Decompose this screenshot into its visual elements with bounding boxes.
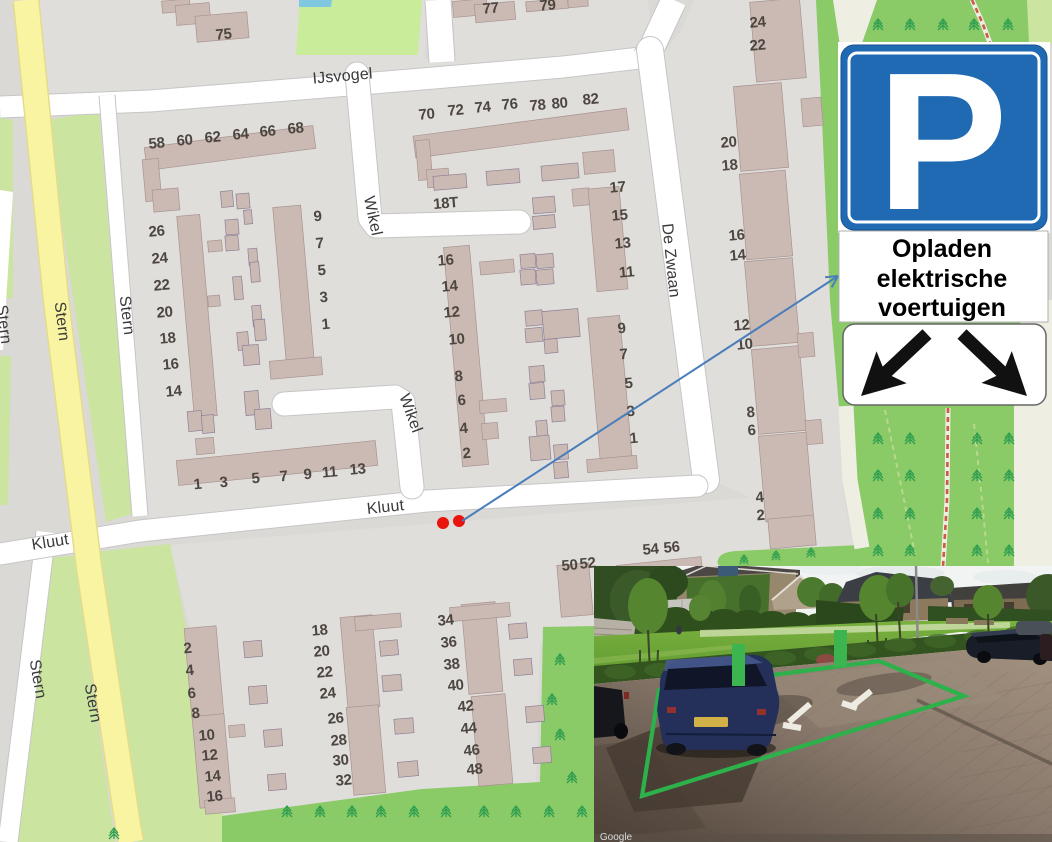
svg-text:17: 17 — [609, 178, 627, 196]
svg-text:2: 2 — [183, 640, 192, 658]
svg-text:11: 11 — [618, 263, 635, 281]
svg-text:5: 5 — [624, 375, 633, 393]
svg-text:38: 38 — [443, 655, 461, 673]
svg-text:14: 14 — [204, 767, 222, 785]
svg-text:50: 50 — [561, 556, 579, 574]
svg-text:8: 8 — [746, 404, 755, 422]
svg-text:58: 58 — [148, 134, 166, 152]
svg-text:6: 6 — [187, 685, 196, 703]
svg-text:14: 14 — [441, 277, 459, 295]
svg-text:82: 82 — [582, 90, 600, 108]
svg-text:72: 72 — [447, 101, 465, 119]
svg-text:elektrische: elektrische — [877, 265, 1008, 293]
svg-text:voertuigen: voertuigen — [878, 294, 1006, 322]
svg-text:16: 16 — [162, 355, 180, 373]
svg-text:76: 76 — [501, 95, 519, 113]
svg-text:8: 8 — [191, 705, 200, 723]
svg-text:13: 13 — [614, 234, 632, 252]
svg-text:7: 7 — [619, 346, 628, 364]
svg-text:28: 28 — [330, 731, 348, 749]
svg-text:34: 34 — [437, 611, 455, 629]
svg-text:20: 20 — [720, 133, 738, 151]
svg-text:10: 10 — [736, 335, 754, 353]
svg-text:68: 68 — [287, 119, 305, 137]
svg-text:18: 18 — [311, 621, 329, 639]
svg-text:60: 60 — [176, 131, 194, 149]
svg-text:2: 2 — [462, 445, 471, 463]
svg-text:7: 7 — [315, 235, 324, 253]
svg-text:16: 16 — [728, 226, 746, 244]
svg-text:77: 77 — [482, 0, 500, 18]
svg-text:14: 14 — [729, 246, 747, 264]
svg-text:16: 16 — [206, 787, 224, 805]
svg-text:78: 78 — [529, 96, 547, 114]
svg-text:22: 22 — [749, 36, 767, 54]
svg-text:24: 24 — [749, 13, 767, 31]
svg-text:46: 46 — [463, 741, 481, 759]
svg-text:6: 6 — [747, 422, 756, 440]
svg-text:18: 18 — [159, 329, 177, 347]
svg-text:70: 70 — [418, 105, 436, 123]
svg-text:66: 66 — [259, 122, 277, 140]
svg-text:Opladen: Opladen — [892, 235, 992, 263]
svg-text:5: 5 — [251, 470, 260, 488]
svg-text:22: 22 — [153, 276, 171, 294]
svg-text:1: 1 — [321, 316, 330, 334]
svg-text:64: 64 — [232, 125, 250, 143]
svg-text:5: 5 — [317, 262, 326, 280]
svg-text:12: 12 — [733, 316, 751, 334]
svg-text:56: 56 — [663, 538, 681, 556]
svg-text:Google: Google — [600, 832, 633, 842]
svg-text:54: 54 — [642, 540, 660, 558]
svg-text:42: 42 — [457, 697, 475, 715]
svg-text:11: 11 — [321, 463, 338, 481]
svg-text:24: 24 — [319, 684, 337, 702]
svg-text:62: 62 — [204, 128, 222, 146]
svg-text:10: 10 — [448, 330, 466, 348]
svg-text:1: 1 — [629, 430, 638, 448]
svg-text:18T: 18T — [432, 194, 458, 213]
svg-text:26: 26 — [327, 709, 345, 727]
svg-text:9: 9 — [303, 466, 312, 484]
svg-text:8: 8 — [454, 368, 463, 386]
svg-text:2: 2 — [756, 507, 765, 525]
svg-text:13: 13 — [349, 460, 367, 478]
svg-text:52: 52 — [579, 554, 597, 572]
svg-text:9: 9 — [313, 208, 322, 226]
svg-text:12: 12 — [443, 303, 461, 321]
svg-text:36: 36 — [440, 633, 458, 651]
svg-text:16: 16 — [437, 251, 455, 269]
svg-text:12: 12 — [201, 746, 219, 764]
svg-text:24: 24 — [151, 249, 169, 267]
svg-text:3: 3 — [319, 289, 328, 307]
svg-text:3: 3 — [219, 474, 228, 492]
svg-text:40: 40 — [447, 676, 465, 694]
svg-text:22: 22 — [316, 663, 334, 681]
svg-text:7: 7 — [279, 468, 288, 486]
svg-text:48: 48 — [466, 760, 484, 778]
svg-text:1: 1 — [193, 476, 202, 494]
svg-text:79: 79 — [539, 0, 557, 15]
svg-text:32: 32 — [335, 771, 353, 789]
svg-text:9: 9 — [617, 320, 626, 338]
svg-text:20: 20 — [156, 303, 174, 321]
svg-text:30: 30 — [332, 751, 350, 769]
svg-text:80: 80 — [551, 94, 569, 112]
svg-text:18: 18 — [721, 156, 739, 174]
svg-text:P: P — [877, 32, 1008, 251]
svg-text:44: 44 — [460, 719, 478, 737]
svg-text:20: 20 — [313, 642, 331, 660]
svg-text:74: 74 — [474, 98, 492, 116]
svg-text:26: 26 — [148, 222, 166, 240]
svg-text:6: 6 — [457, 392, 466, 410]
svg-text:75: 75 — [215, 25, 233, 43]
svg-text:14: 14 — [165, 382, 183, 400]
svg-text:10: 10 — [198, 726, 216, 744]
svg-text:15: 15 — [611, 206, 629, 224]
